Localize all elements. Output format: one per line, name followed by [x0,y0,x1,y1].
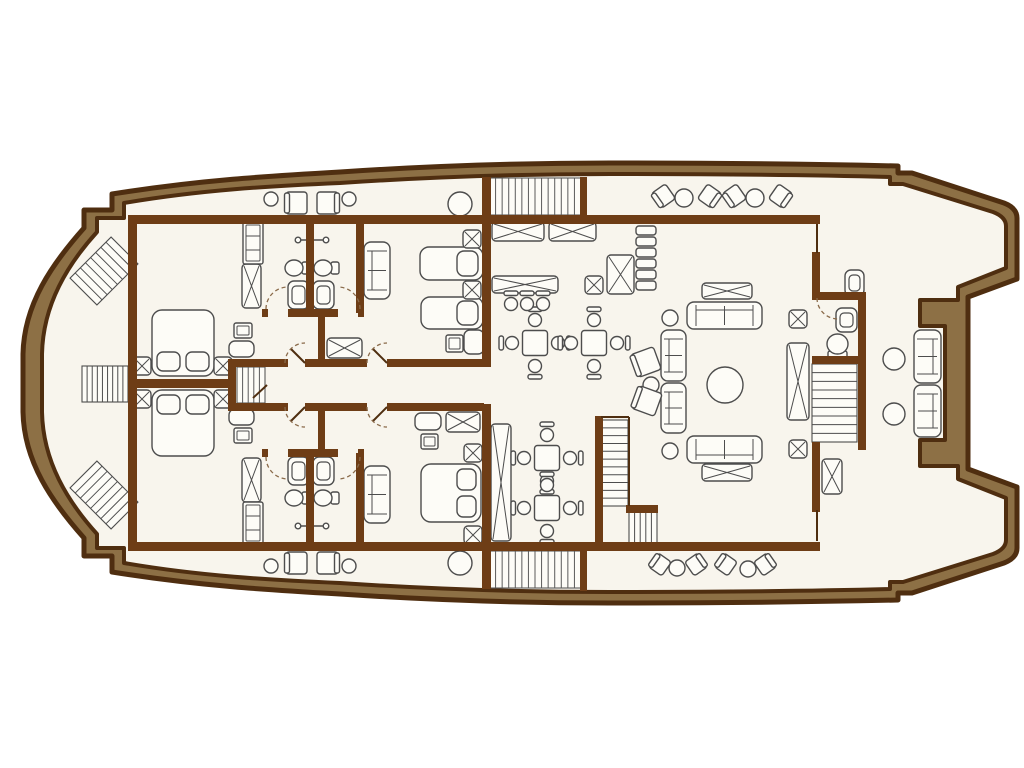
cabinet-x [327,338,362,358]
wall [318,407,325,453]
wall [812,252,820,298]
cabinet-x [702,283,752,299]
wall [387,403,484,411]
wall [812,356,862,364]
sink [314,490,339,506]
sofa [364,466,390,523]
wall [812,442,820,512]
sofa [661,330,686,381]
table-round [448,192,472,216]
side-table-x [463,230,481,248]
wall [305,359,367,367]
bed-double [421,464,481,522]
stairs-hatch [237,367,265,403]
cabinet-x [242,458,261,502]
toilet-unit [313,281,334,309]
toilet-unit [313,457,334,485]
sofa [687,302,762,329]
wall [128,215,820,224]
sofa [914,330,941,383]
pouf [415,413,441,430]
cabinet-x [446,412,480,432]
side-table-x [464,526,482,544]
stairs [601,420,628,506]
stool [421,434,438,449]
cabinet-x [242,264,261,308]
sofa [687,436,762,463]
pouf [464,330,484,354]
side-table-x [789,310,807,328]
table-round [448,551,472,575]
sofa [661,383,686,433]
wall [262,449,268,457]
toilet [827,334,848,358]
wall [387,359,484,367]
barstool [504,291,518,311]
chair [285,552,308,574]
wall [812,292,866,300]
bed-single [421,297,483,329]
table-round [883,348,905,370]
pouf [229,341,254,357]
side-table-x [463,281,481,299]
sink [314,260,339,276]
wall [228,403,288,411]
toilet-unit [836,308,857,332]
toilet-unit [288,281,309,309]
wall [306,215,314,313]
stairs-hatch [489,551,581,588]
cabinet [243,222,263,264]
chair [317,552,340,574]
wall [595,416,603,546]
chair [317,192,340,214]
toilet-unit [288,457,309,485]
table-round [662,443,678,459]
wall [228,359,288,367]
table-round [342,192,356,206]
side-table-x [464,444,482,462]
cabinet [243,502,263,544]
cabinet-x [787,343,809,420]
table-round [746,189,764,207]
yacht-deck-plan [0,0,1024,768]
cabinet-x [702,464,752,481]
floor-plan-page [0,0,1024,768]
wall [626,505,658,513]
side-table-x [585,276,603,294]
sofa [914,385,941,437]
barstool [520,291,534,311]
table-round [342,559,356,573]
chair [285,192,308,214]
stairs [812,364,857,442]
stairs [82,366,128,402]
stool [234,428,252,443]
table-round [669,560,685,576]
wall [482,404,491,589]
wall [858,292,866,366]
wall [306,453,314,547]
wall [305,403,367,411]
table-round [264,192,278,206]
wall [318,313,325,363]
pouf [229,409,254,425]
wall [482,177,491,367]
wall [580,551,587,591]
wall [128,542,820,551]
cabinet-x [549,222,596,241]
wall [858,360,866,450]
bed-double [152,390,214,456]
bed-double [152,310,214,376]
stool [446,335,463,352]
wall [128,379,228,388]
cabinet-x [822,459,842,494]
cabinet-x [491,424,511,541]
wall [580,177,587,217]
table-round [675,189,693,207]
side-table-x [789,440,807,458]
stairs-hatch [489,178,581,215]
stool [234,323,252,338]
barstool [536,291,550,311]
table-round [264,559,278,573]
sofa [364,242,390,299]
cabinet-x [607,255,634,294]
table-round [740,561,756,577]
table-round [662,310,678,326]
table-round [883,403,905,425]
table-round [707,367,743,403]
wall [262,309,268,317]
bed-single [420,247,483,280]
cabinet-x [492,222,544,241]
wall [356,215,364,313]
stairs [629,512,657,546]
